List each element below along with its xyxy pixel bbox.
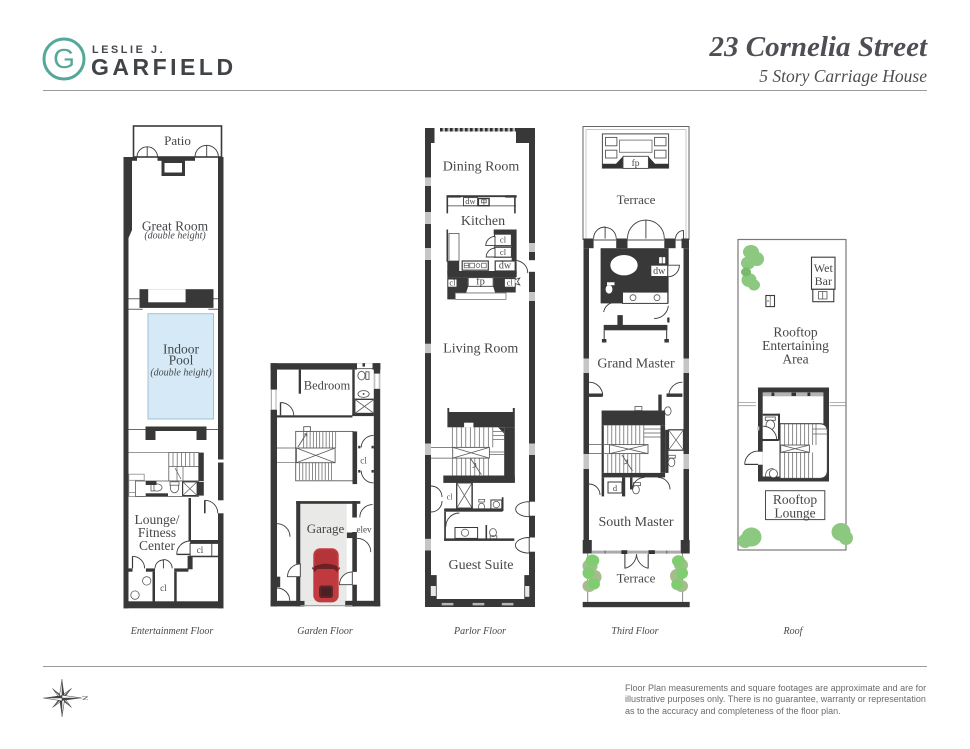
svg-text:cl: cl [197,545,204,555]
svg-text:Wet: Wet [814,261,834,275]
svg-text:Grand Master: Grand Master [597,357,675,372]
svg-text:Patio: Patio [164,133,191,148]
svg-text:Center: Center [139,538,175,553]
svg-text:(double height): (double height) [150,368,212,379]
svg-text:cl: cl [507,278,514,288]
svg-text:Terrace: Terrace [617,192,656,207]
svg-text:cl: cl [447,492,454,502]
svg-text:dw: dw [653,266,666,277]
svg-text:(double height): (double height) [144,231,206,242]
svg-text:dw: dw [465,196,476,206]
svg-text:Pool: Pool [169,353,194,368]
svg-text:cl: cl [449,278,456,288]
svg-text:G: G [53,43,75,74]
svg-text:fp: fp [476,277,485,288]
svg-text:cl: cl [360,456,367,466]
svg-text:Area: Area [782,352,808,367]
svg-text:Bedroom: Bedroom [304,379,351,393]
svg-text:Dining Room: Dining Room [443,160,520,175]
svg-text:Terrace: Terrace [617,571,656,586]
svg-text:Living Room: Living Room [443,342,518,357]
svg-text:Lounge: Lounge [774,506,815,521]
svg-text:cl: cl [500,247,507,257]
svg-text:elev: elev [357,525,372,535]
svg-text:cl: cl [160,583,167,593]
svg-text:cl: cl [500,235,507,245]
svg-text:Kitchen: Kitchen [461,214,505,229]
svg-text:Garage: Garage [307,521,345,536]
svg-text:South Master: South Master [598,515,673,530]
svg-text:fp: fp [632,158,640,169]
svg-text:Bar: Bar [815,274,832,288]
svg-text:N: N [81,695,89,700]
svg-text:dw: dw [499,261,512,272]
svg-text:Guest Suite: Guest Suite [449,558,514,573]
